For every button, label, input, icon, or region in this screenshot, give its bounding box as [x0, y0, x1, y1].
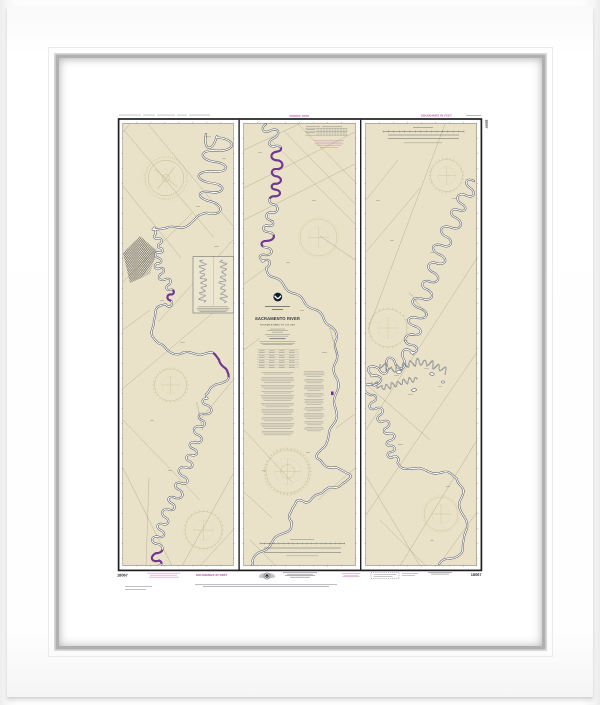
svg-text:18067: 18067 [471, 572, 482, 577]
svg-text:SACRAMENTO RIVER: SACRAMENTO RIVER [255, 316, 300, 321]
svg-text:FOURMILE BEND TO COLUSA: FOURMILE BEND TO COLUSA [260, 323, 295, 326]
svg-text:18067: 18067 [484, 120, 488, 129]
svg-text:18067: 18067 [117, 572, 128, 577]
svg-text:SOUNDINGS IN FEET: SOUNDINGS IN FEET [196, 573, 228, 577]
svg-text:SOUNDINGS IN FEET: SOUNDINGS IN FEET [421, 114, 452, 118]
